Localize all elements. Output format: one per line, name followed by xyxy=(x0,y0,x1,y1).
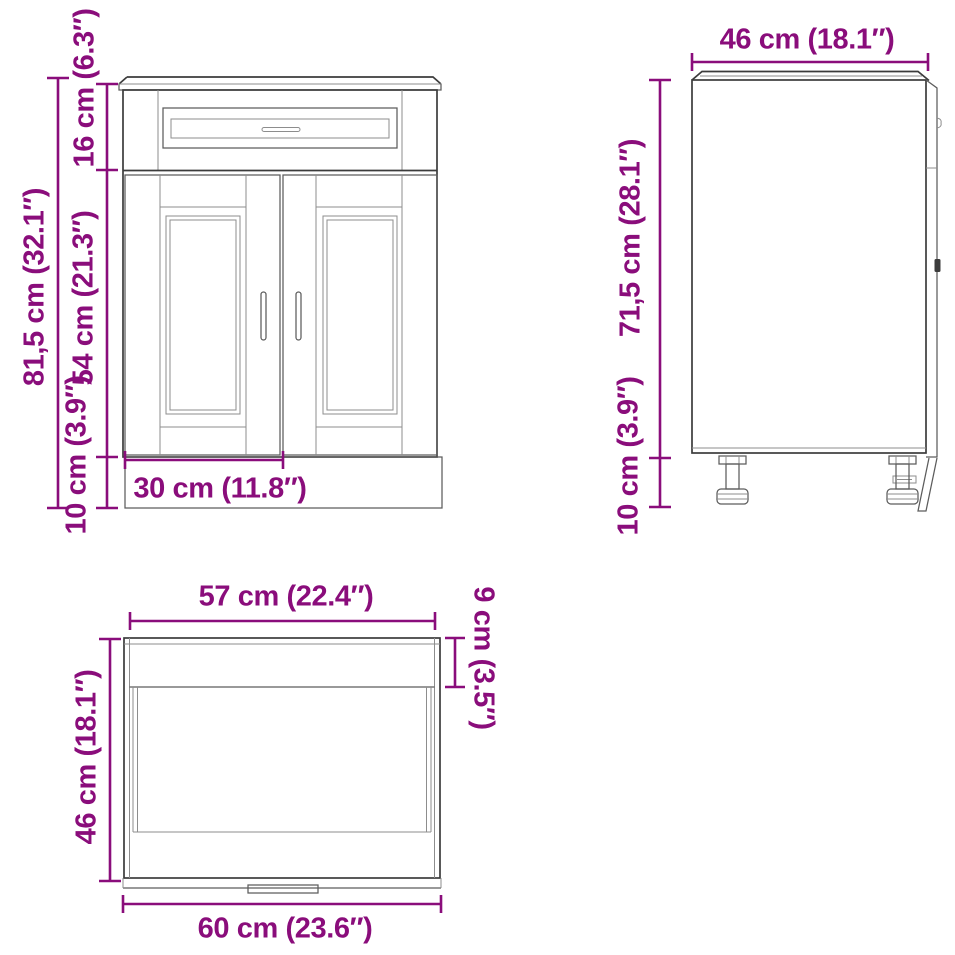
side-depth-label: 46 cm (18.1″) xyxy=(720,26,895,55)
front-plinth-height-label: 10 cm (3.9″) xyxy=(63,375,92,534)
side-plinth-height-label: 10 cm (3.9″) xyxy=(615,376,644,535)
front-top-section-height-label: 16 cm (6.3″) xyxy=(71,8,100,167)
top-panel-width-label: 57 cm (22.4″) xyxy=(199,583,374,612)
diagram-canvas: 81,5 cm (32.1″) 16 cm (6.3″) 54 cm (21.3… xyxy=(0,0,955,955)
top-depth-label: 46 cm (18.1″) xyxy=(73,670,102,845)
plinth-board xyxy=(918,458,937,511)
top-view-handle-mark xyxy=(248,885,318,893)
front-total-height-label: 81,5 cm (32.1″) xyxy=(21,188,50,386)
right-door-handle xyxy=(296,292,301,340)
front-door-width-label: 30 cm (11.8″) xyxy=(133,475,306,504)
top-total-width-label: 60 cm (23.6″) xyxy=(198,915,373,944)
top-front-edge-depth-label: 9 cm (3.5″) xyxy=(469,586,498,729)
top-view-dimension-lines xyxy=(99,612,465,913)
front-door-section-height-label: 54 cm (21.3″) xyxy=(70,211,99,386)
side-handle-mark xyxy=(935,259,941,272)
side-view-drawing xyxy=(692,72,941,512)
side-body-height-label: 71,5 cm (28.1″) xyxy=(617,139,646,337)
top-view-drawing xyxy=(123,638,441,893)
side-view-dimension-lines xyxy=(649,53,928,507)
front-view-drawing xyxy=(119,77,442,508)
left-door-handle xyxy=(261,292,266,340)
cabinet-foot xyxy=(716,456,749,504)
